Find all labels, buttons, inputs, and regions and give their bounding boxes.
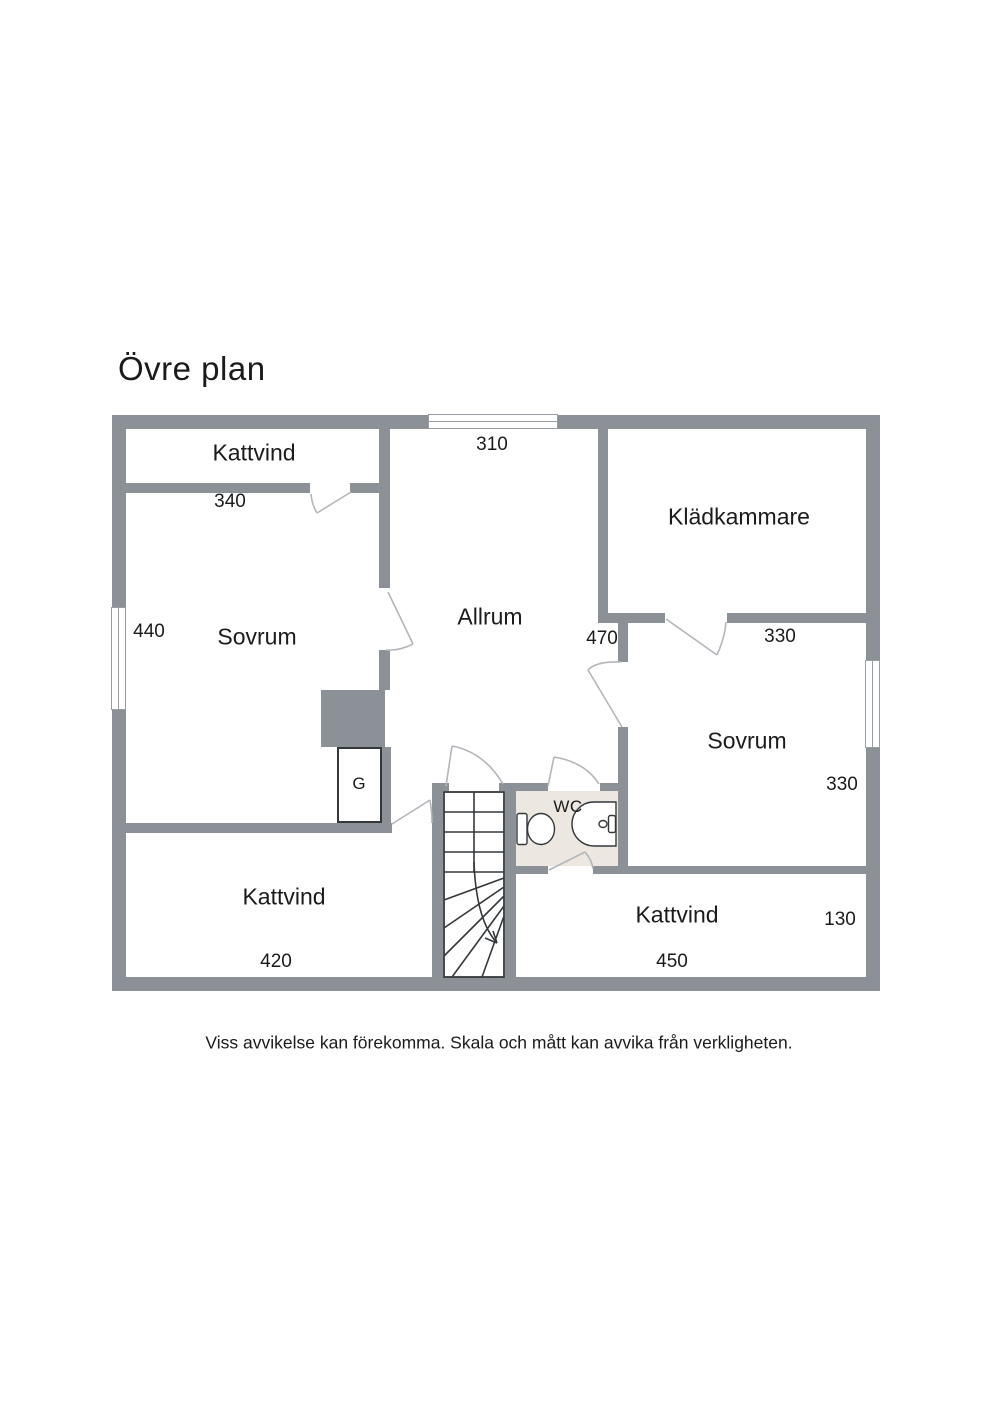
wall-hall-sovrum-right [618, 623, 628, 662]
chimney-block [321, 690, 385, 747]
room-label-sovrum-left: Sovrum [217, 624, 296, 651]
wardrobe-label: G [352, 774, 365, 794]
wc-label: WC [553, 797, 582, 817]
stair-outline [444, 792, 504, 977]
wall-stair-east [505, 783, 516, 977]
window-left [111, 607, 126, 710]
wall-allrum-kladkammare [598, 429, 608, 613]
door-sovrum-left-allrum [386, 592, 413, 650]
stair-direction-arrow [474, 862, 497, 943]
room-label-sovrum-right: Sovrum [707, 728, 786, 755]
wall-stair-west [432, 783, 443, 977]
staircase [444, 792, 504, 977]
dim-hall: 470 [586, 628, 618, 650]
dim-kladkammare: 330 [764, 626, 796, 648]
wall-allrum-west-upper [379, 429, 390, 588]
room-label-allrum: Allrum [457, 604, 522, 631]
door-kladkammare [666, 619, 726, 655]
wall-wc-bottom-b [593, 866, 628, 874]
floor-plan-page: Övre plan [0, 0, 992, 1403]
dim-kattvind-bottom-left: 420 [260, 951, 292, 973]
wall-sovrum-right-bottom [628, 866, 866, 874]
dim-kattvind-top: 340 [214, 491, 246, 513]
wall-sovrum-left-bottom [126, 823, 392, 833]
door-wc-north [548, 757, 599, 786]
wall-wc-east [618, 727, 628, 874]
door-stairs [446, 746, 503, 786]
dim-sovrum-right-window: 330 [826, 774, 858, 796]
wall-stair-top-jamb-left [443, 783, 449, 791]
wall-wc-top-a [516, 783, 548, 791]
window-glass-line [872, 661, 874, 747]
room-label-kattvind-bottom-left: Kattvind [242, 884, 325, 911]
wall-kladkammare-bottom-b [727, 613, 866, 623]
dim-sovrum-left-window: 440 [133, 621, 165, 643]
room-label-kattvind-bottom-right: Kattvind [635, 902, 718, 929]
room-label-kattvind-top: Kattvind [212, 440, 295, 467]
window-top [428, 414, 558, 429]
stair-treads [444, 812, 504, 872]
wall-allrum-west-lower [379, 650, 390, 690]
window-right [865, 660, 880, 748]
door-sovrum-right [588, 662, 622, 727]
room-label-kladkammare: Klädkammare [668, 504, 810, 531]
wall-outer-bottom [112, 977, 880, 991]
page-title: Övre plan [118, 350, 266, 388]
wall-kattvind-top-b [350, 483, 380, 493]
dim-kattvind-bottom-right: 450 [656, 951, 688, 973]
wall-closet-east [381, 747, 391, 825]
door-kattvind-bottom-left [392, 800, 432, 824]
wall-wc-bottom-a [505, 866, 548, 874]
dim-kattvind-bottom-right-depth: 130 [824, 909, 856, 931]
stair-winders [444, 878, 504, 977]
wall-stair-top-jamb-right [499, 783, 505, 791]
window-glass-line [118, 608, 120, 709]
plan-linework [0, 0, 992, 1403]
wall-kladkammare-bottom-a [598, 613, 665, 623]
disclaimer-text: Viss avvikelse kan förekomma. Skala och … [205, 1033, 792, 1054]
window-glass-line [429, 421, 557, 423]
dim-allrum-window: 310 [476, 434, 508, 456]
door-kattvind-top [311, 492, 351, 513]
